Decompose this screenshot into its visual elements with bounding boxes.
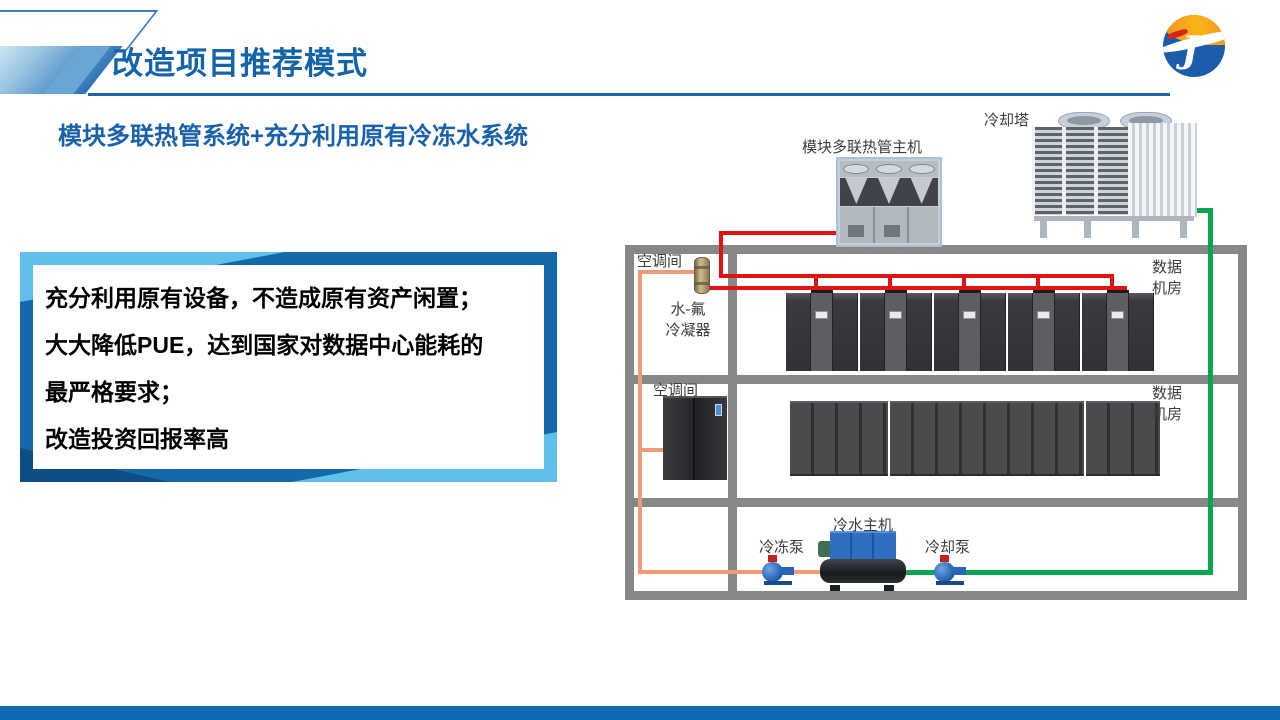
red-pipe-upper-manifold [719, 274, 1114, 278]
crac-display [715, 404, 722, 416]
condenser-label: 水-氟 冷凝器 [661, 299, 715, 341]
info-line-2: 大大降低PUE，达到国家对数据中心能耗的 [45, 322, 544, 369]
heat-pipe-host-image [836, 157, 942, 247]
heat-pipe-host-fans [840, 161, 938, 177]
heat-pipe-host-label: 模块多联热管主机 [802, 136, 922, 157]
orange-pipe-riser [638, 270, 642, 574]
ac-room-2-label: 空调间 [653, 379, 698, 400]
page-title: 改造项目推荐模式 [112, 38, 368, 83]
data-room-2-label: 数据 机房 [1146, 383, 1188, 425]
chilled-water-pump-label: 冷冻泵 [759, 536, 804, 557]
cooling-tower-louvers [1032, 127, 1128, 215]
server-rack-group [860, 293, 932, 371]
server-rack-group [1008, 293, 1080, 371]
room-vertical-divider [728, 245, 737, 600]
cooling-pump-image [934, 555, 968, 585]
cooling-tower-side [1128, 123, 1197, 217]
chiller-image [818, 531, 908, 591]
cooling-pump-label: 冷却泵 [925, 536, 970, 557]
slide: 改造项目推荐模式 J 模块多联热管系统+充分利用原有冷冻水系统 充分利用原有设备… [0, 0, 1280, 720]
company-logo-icon: J [1163, 15, 1225, 77]
server-rack-row-segment [890, 401, 1084, 476]
server-rack-row-segment [790, 401, 888, 476]
highlight-text-content: 充分利用原有设备，不造成原有资产闲置； 大大降低PUE，达到国家对数据中心能耗的… [33, 265, 544, 469]
green-pipe-riser [1208, 208, 1213, 575]
orange-pipe-bottom-run [638, 570, 768, 574]
crac-unit-image [663, 396, 727, 480]
red-pipe-lower-manifold [710, 286, 1127, 290]
server-rack-group [786, 293, 858, 371]
server-rack-group [1082, 293, 1154, 371]
room-divider-row2-row3 [625, 498, 1247, 507]
slide-subtitle: 模块多联热管系统+充分利用原有冷冻水系统 [58, 116, 528, 151]
logo-letter: J [1182, 29, 1225, 71]
highlight-text-box: 充分利用原有设备，不造成原有资产闲置； 大大降低PUE，达到国家对数据中心能耗的… [20, 252, 557, 482]
header-underline [88, 93, 1170, 96]
data-room-1-label: 数据 机房 [1146, 257, 1188, 299]
cooling-tower-image [1032, 112, 1197, 238]
info-line-4: 改造投资回报率高 [45, 416, 544, 463]
heat-pipe-host-coils [840, 178, 938, 206]
chilled-water-pump-image [762, 555, 796, 585]
heat-pipe-host-cabinet [840, 207, 938, 243]
red-pipe-host-riser [719, 232, 723, 278]
info-line-3: 最严格要求； [45, 369, 544, 416]
footer-bar [0, 706, 1280, 720]
water-fluorine-condenser [694, 257, 710, 294]
server-rack-group [934, 293, 1006, 371]
cooling-tower-label: 冷却塔 [984, 109, 1029, 130]
ac-room-1-label: 空调间 [637, 250, 682, 271]
info-line-1: 充分利用原有设备，不造成原有资产闲置； [45, 275, 544, 322]
chiller-label: 冷水主机 [833, 514, 893, 535]
